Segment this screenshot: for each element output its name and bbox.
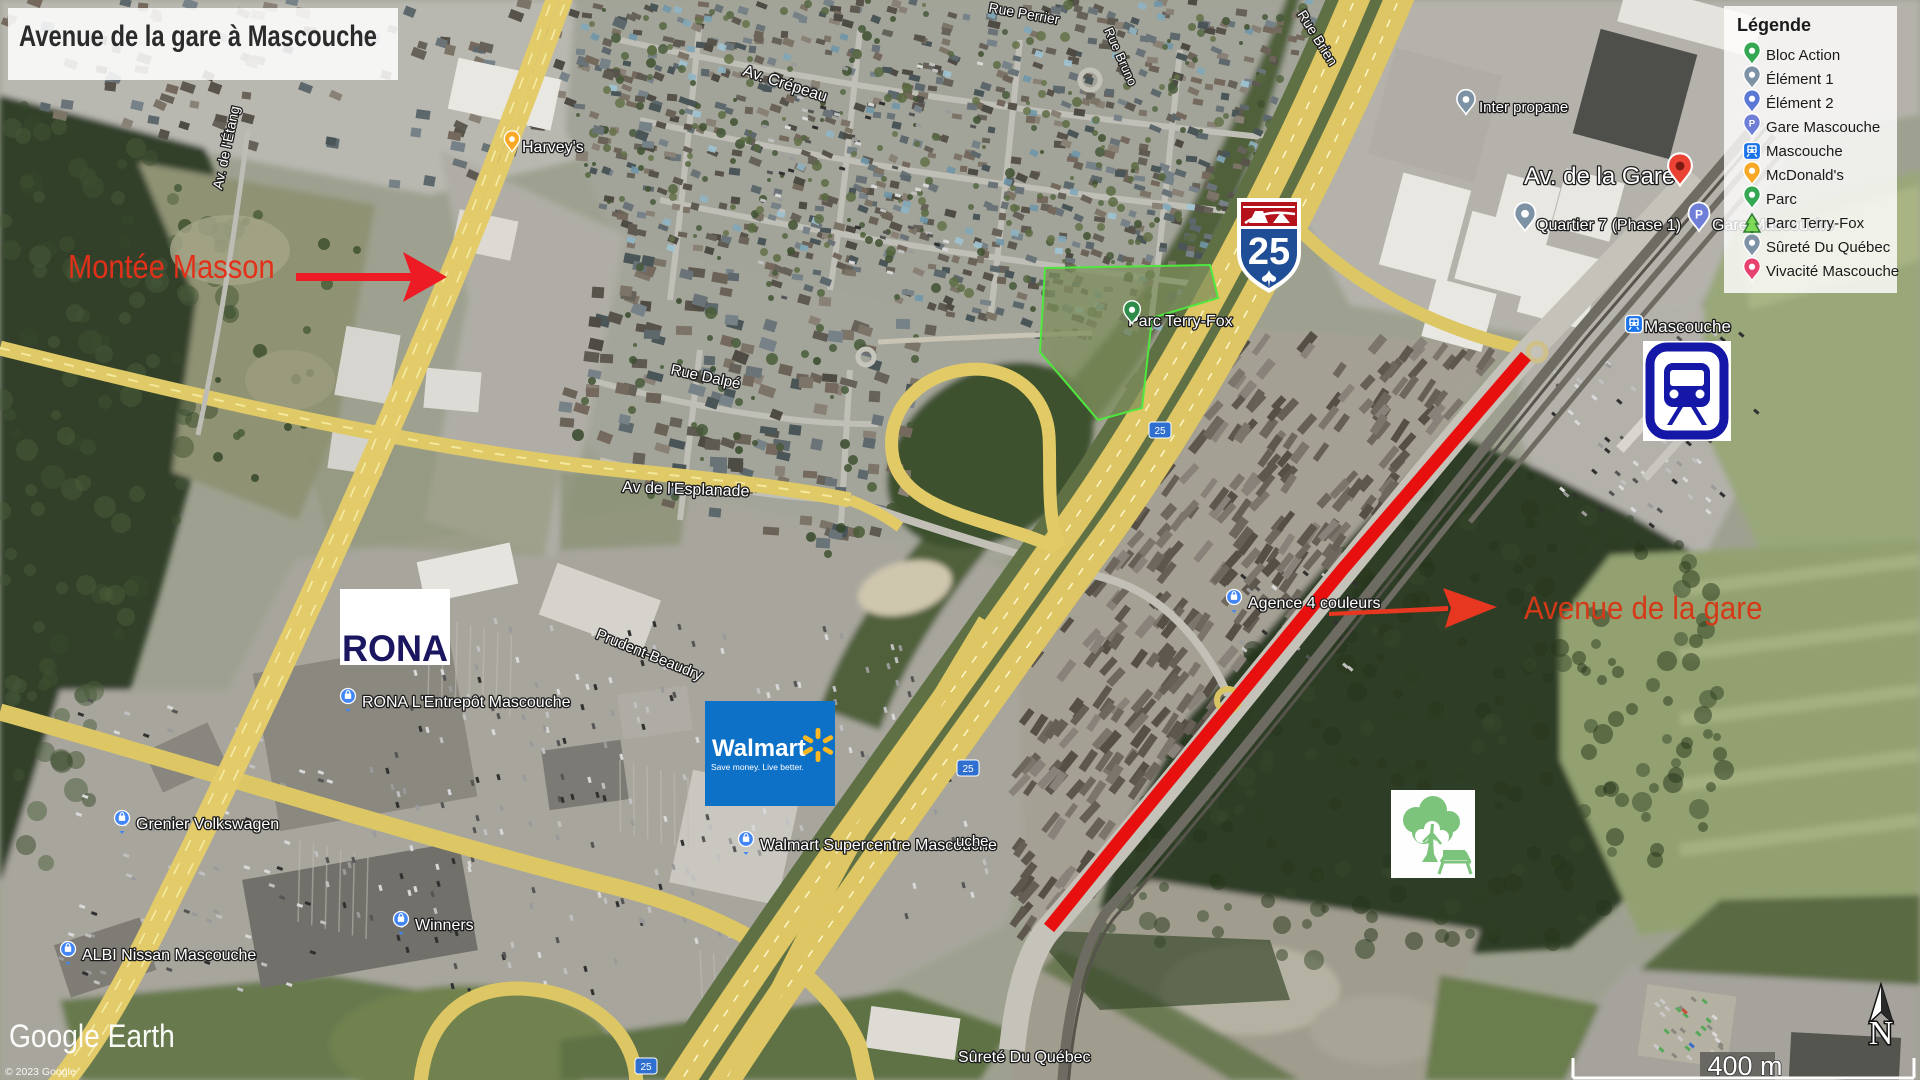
svg-text:400 m: 400 m	[1707, 1051, 1782, 1080]
svg-text:Sûreté Du Québec: Sûreté Du Québec	[1766, 239, 1891, 256]
svg-text:Parc Terry-Fox: Parc Terry-Fox	[1766, 215, 1865, 232]
svg-text:25: 25	[1154, 426, 1166, 437]
svg-text:© 2023 Google: © 2023 Google	[5, 1066, 76, 1078]
svg-text:Agence 4 couleurs: Agence 4 couleurs	[1248, 595, 1381, 612]
svg-text:ALBI Nissan Mascouche: ALBI Nissan Mascouche	[82, 947, 256, 964]
svg-text:Harvey's: Harvey's	[522, 139, 584, 156]
svg-text:Quartier 7 (Phase 1): Quartier 7 (Phase 1)	[1536, 217, 1681, 234]
svg-text:RONA L'Entrepôt Mascouche: RONA L'Entrepôt Mascouche	[362, 694, 571, 711]
svg-text:Bloc Action: Bloc Action	[1766, 47, 1840, 64]
svg-text:Google Earth: Google Earth	[9, 1019, 175, 1054]
svg-text:Sûreté Du Québec: Sûreté Du Québec	[958, 1049, 1091, 1066]
svg-text:Élément 1: Élément 1	[1766, 71, 1834, 88]
svg-text:Avenue de la gare à Mascouche: Avenue de la gare à Mascouche	[19, 20, 377, 53]
svg-text:Inter propane: Inter propane	[1479, 99, 1568, 116]
svg-text:Élément 2: Élément 2	[1766, 95, 1834, 112]
svg-text:N: N	[1869, 1015, 1894, 1052]
svg-text:Walmart: Walmart	[712, 735, 806, 762]
svg-text:Légende: Légende	[1737, 15, 1811, 35]
svg-text:P: P	[1749, 118, 1756, 129]
svg-text:Winners: Winners	[415, 917, 474, 934]
svg-text:Gare Mascouche: Gare Mascouche	[1766, 119, 1880, 136]
svg-text:RONA: RONA	[342, 628, 448, 669]
svg-text:Vivacité Mascouche: Vivacité Mascouche	[1766, 263, 1899, 280]
svg-text:Grenier Volkswagen: Grenier Volkswagen	[136, 816, 279, 833]
svg-text:25: 25	[1248, 231, 1290, 273]
svg-text:Parc Terry-Fox: Parc Terry-Fox	[1128, 313, 1233, 330]
svg-text:P: P	[1695, 207, 1703, 221]
svg-text:Av. de la Gare: Av. de la Gare	[1524, 163, 1675, 190]
svg-text:uche: uche	[956, 833, 989, 850]
svg-text:Save money. Live better.: Save money. Live better.	[711, 762, 804, 772]
svg-text:Mascouche: Mascouche	[1766, 143, 1843, 160]
svg-text:25: 25	[962, 764, 974, 775]
svg-text:McDonald's: McDonald's	[1766, 167, 1844, 184]
svg-text:Parc: Parc	[1766, 191, 1797, 208]
svg-text:Mascouche: Mascouche	[1644, 317, 1731, 336]
svg-text:25: 25	[640, 1062, 652, 1073]
